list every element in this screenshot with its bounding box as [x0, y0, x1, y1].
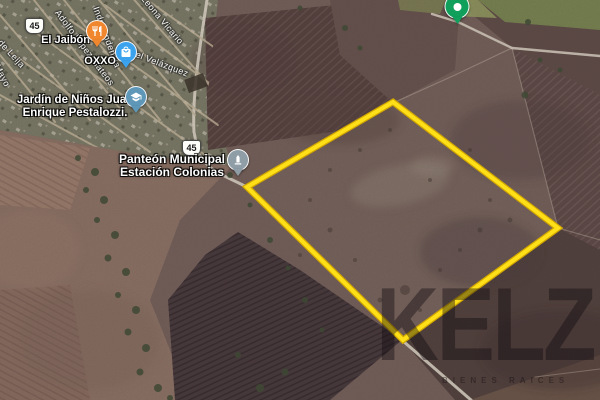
- restaurant-pin[interactable]: [86, 20, 108, 52]
- convenience-store-pin[interactable]: [115, 41, 137, 73]
- school-pin[interactable]: [125, 86, 147, 118]
- monument-icon: [232, 154, 244, 166]
- highway-shield-45-top: 45: [25, 18, 44, 34]
- place-pin[interactable]: [445, 0, 470, 29]
- cemetery-pin[interactable]: [227, 149, 249, 181]
- poi-label-oxxo[interactable]: OXXO: [84, 55, 116, 67]
- pin-center-dot: [453, 3, 461, 11]
- poi-label-cemetery[interactable]: Panteón Municipal Estación Colonias: [110, 153, 234, 180]
- school-icon: [130, 91, 142, 103]
- poi-label-el-jaibon[interactable]: El Jaibón: [34, 34, 90, 46]
- satellite-map[interactable]: Adolfo López Mateos Independencia Leona …: [0, 0, 600, 400]
- restaurant-icon: [91, 25, 103, 37]
- poi-label-school[interactable]: Jardín de Niños Juan Enrique Pestalozzi.: [16, 94, 134, 120]
- shopping-bag-icon: [120, 46, 132, 58]
